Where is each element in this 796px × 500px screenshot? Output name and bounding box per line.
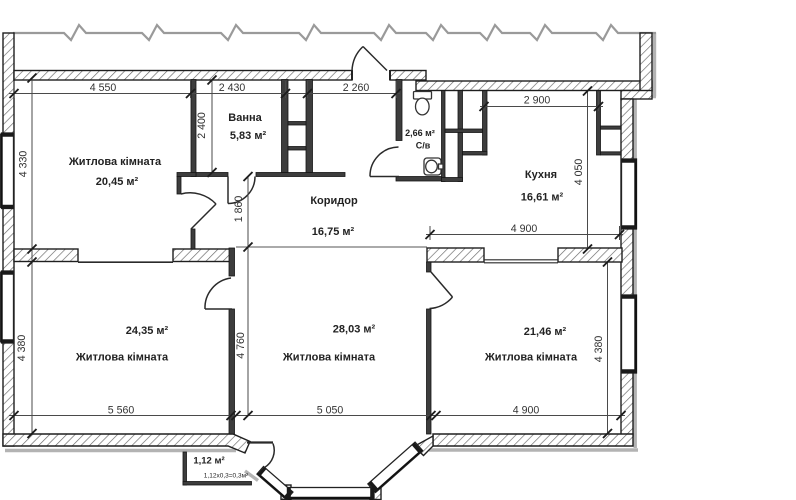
svg-text:Житлова кімната: Житлова кімната (75, 352, 169, 364)
svg-text:4 380: 4 380 (593, 336, 605, 363)
svg-text:4 050: 4 050 (573, 159, 585, 186)
svg-text:4 760: 4 760 (235, 332, 247, 359)
svg-text:1 860: 1 860 (233, 196, 245, 223)
svg-text:Ванна: Ванна (228, 112, 262, 124)
svg-text:21,46 м²: 21,46 м² (524, 326, 567, 338)
svg-text:5 050: 5 050 (317, 405, 344, 417)
svg-text:Житлова кімната: Житлова кімната (484, 352, 578, 364)
svg-text:Житлова кімната: Житлова кімната (282, 352, 376, 364)
svg-text:С/в: С/в (416, 141, 431, 151)
svg-text:4 330: 4 330 (18, 151, 30, 178)
svg-text:2,66 м²: 2,66 м² (405, 128, 435, 138)
svg-text:4 900: 4 900 (511, 223, 538, 235)
svg-text:Коридор: Коридор (310, 195, 358, 207)
svg-text:5,83 м²: 5,83 м² (230, 130, 267, 142)
svg-text:20,45 м²: 20,45 м² (96, 176, 139, 188)
svg-text:4 900: 4 900 (513, 405, 540, 417)
svg-text:Кухня: Кухня (525, 169, 557, 181)
svg-text:16,75 м²: 16,75 м² (312, 226, 355, 238)
svg-text:2 400: 2 400 (196, 112, 208, 139)
svg-text:5 560: 5 560 (108, 405, 135, 417)
svg-text:2 900: 2 900 (524, 95, 551, 107)
svg-text:1,12 м²: 1,12 м² (193, 456, 224, 467)
svg-text:1,12x0,3=0,3м²: 1,12x0,3=0,3м² (204, 473, 249, 480)
svg-text:4 550: 4 550 (90, 82, 117, 94)
svg-text:2 260: 2 260 (343, 82, 370, 94)
svg-text:2 430: 2 430 (219, 82, 246, 94)
svg-text:Житлова кімната: Житлова кімната (68, 156, 162, 168)
svg-text:28,03 м²: 28,03 м² (333, 324, 376, 336)
svg-text:24,35 м²: 24,35 м² (126, 325, 169, 337)
svg-text:4 380: 4 380 (16, 335, 28, 362)
svg-text:16,61 м²: 16,61 м² (521, 192, 564, 204)
